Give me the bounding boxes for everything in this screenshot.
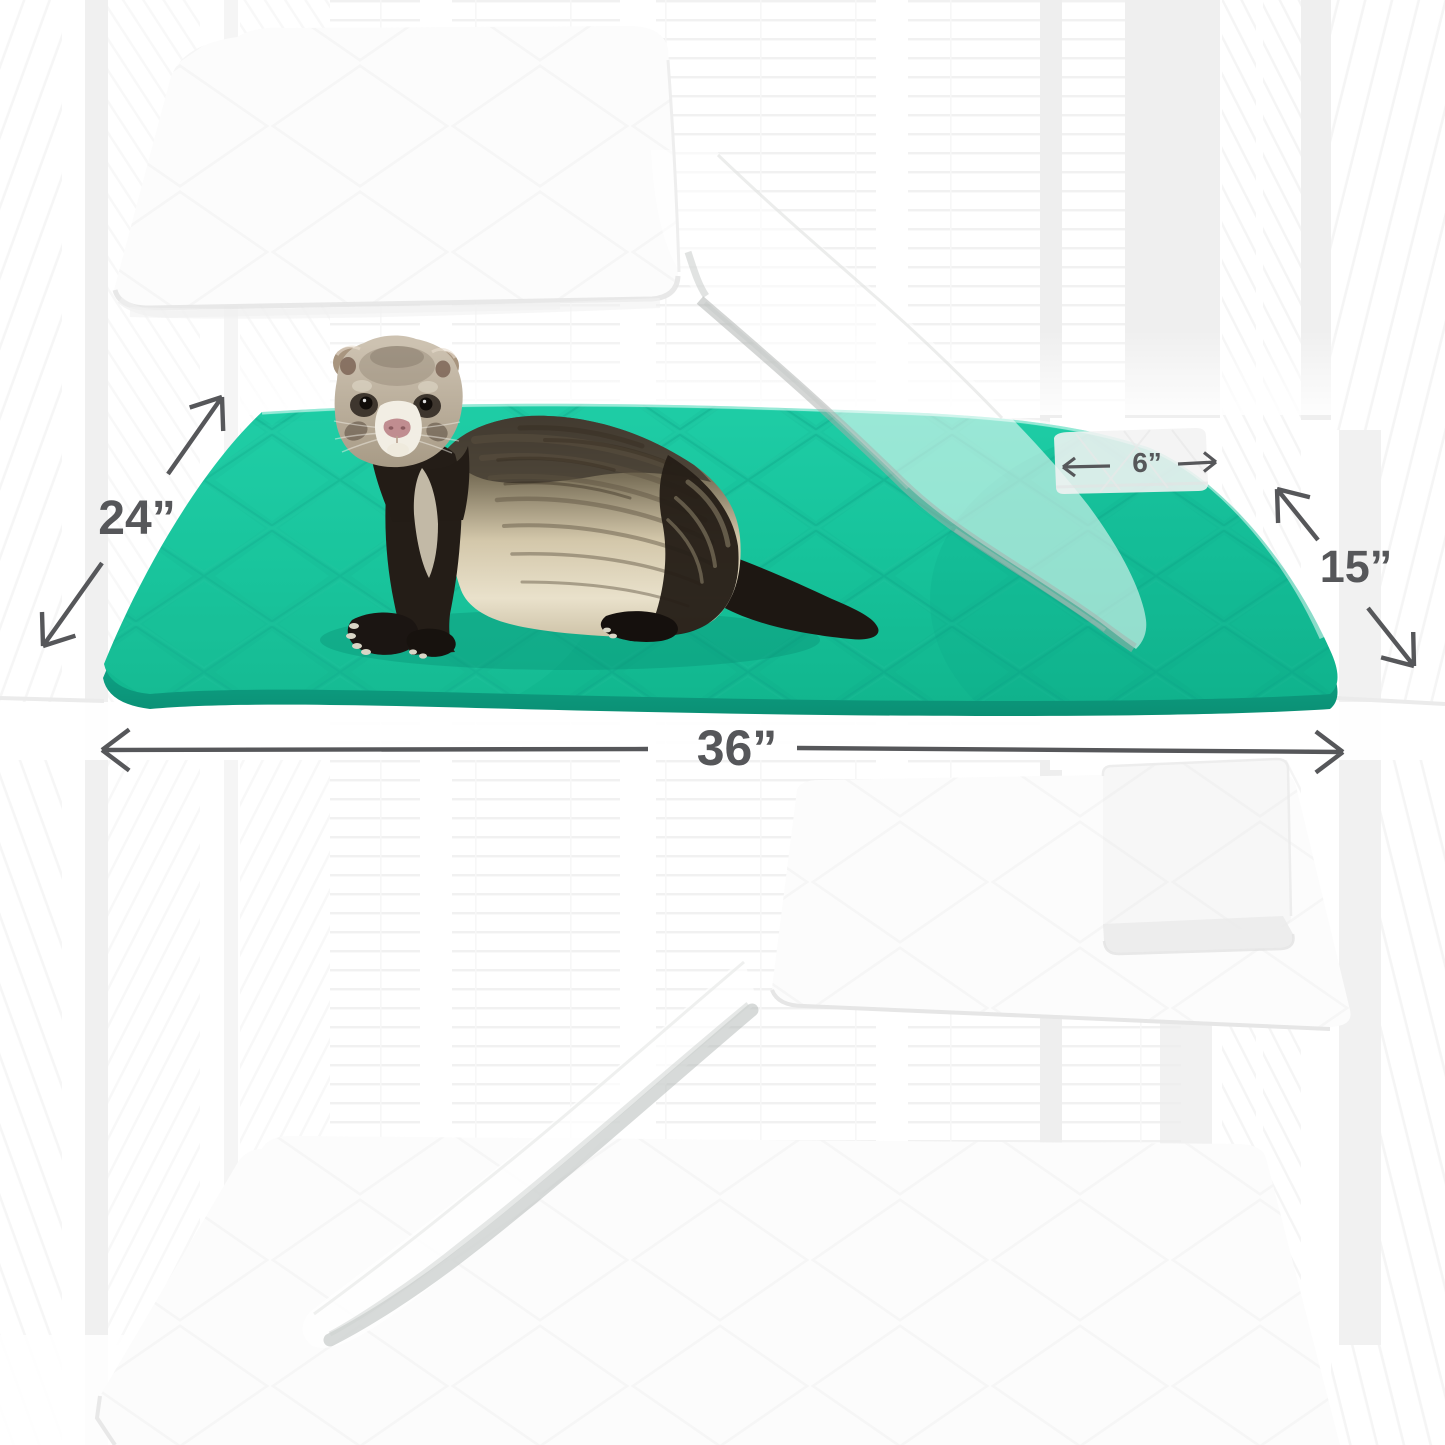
svg-text:36”: 36”: [697, 720, 778, 776]
svg-text:24”: 24”: [98, 492, 175, 545]
svg-text:6”: 6”: [1132, 447, 1162, 478]
svg-text:15”: 15”: [1320, 541, 1393, 592]
